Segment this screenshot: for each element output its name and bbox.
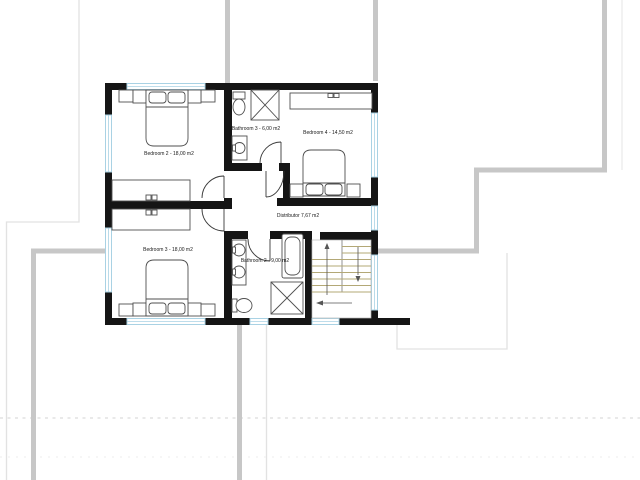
wall-stairs-north bbox=[320, 232, 378, 240]
wall-bathroom2-right bbox=[305, 231, 312, 325]
shelf-icon bbox=[201, 90, 215, 102]
room-label-bedroom-3: Bedroom 3 - 18,00 m2 bbox=[143, 247, 193, 253]
room-label-bedroom-4: Bedroom 4 - 14,50 m2 bbox=[303, 130, 353, 136]
toilet-icon bbox=[233, 92, 245, 115]
nightstand-icon bbox=[188, 303, 201, 316]
wall-bathroom2-left bbox=[224, 231, 232, 325]
wall-bedroom4-south bbox=[277, 198, 378, 206]
wall-bathroom3-left bbox=[224, 83, 232, 171]
room-label-bathroom-2: Bathroom 2 - 9,00 m2 bbox=[241, 258, 290, 264]
floor-plan-canvas: Bedroom 2 - 18,00 m2 Bathroom 3 - 6,00 m… bbox=[0, 0, 640, 480]
nightstand-icon bbox=[290, 184, 303, 197]
wall-spine-junction bbox=[224, 198, 232, 209]
shelf-icon bbox=[119, 90, 133, 102]
shower-icon bbox=[271, 282, 303, 314]
wardrobe-icon bbox=[112, 209, 190, 230]
shelf-icon bbox=[119, 304, 133, 316]
bathtub-icon bbox=[282, 234, 303, 278]
wardrobe-icon bbox=[290, 93, 372, 109]
toilet-icon bbox=[232, 299, 252, 313]
sink-icon bbox=[232, 136, 247, 160]
wall-closet-divider bbox=[105, 201, 232, 209]
wardrobe-icon bbox=[112, 180, 190, 201]
double-bed-icon bbox=[303, 150, 345, 196]
nightstand-icon bbox=[188, 90, 201, 103]
wall-bathroom2-top-left bbox=[232, 231, 248, 239]
nightstand-icon bbox=[133, 90, 146, 103]
room-label-bathroom-3: Bathroom 3 - 6,00 m2 bbox=[232, 126, 281, 132]
shower-icon bbox=[251, 90, 279, 120]
room-label-distributor: Distributor 7,67 m2 bbox=[277, 213, 319, 219]
nightstand-icon bbox=[133, 303, 146, 316]
shelf-icon bbox=[201, 304, 215, 316]
double-bed-icon bbox=[146, 90, 188, 146]
wall-bathroom3-bottom-left bbox=[224, 163, 262, 171]
double-bed-icon bbox=[146, 260, 188, 316]
nightstand-icon bbox=[347, 184, 360, 197]
room-label-bedroom-2: Bedroom 2 - 18,00 m2 bbox=[144, 151, 194, 157]
